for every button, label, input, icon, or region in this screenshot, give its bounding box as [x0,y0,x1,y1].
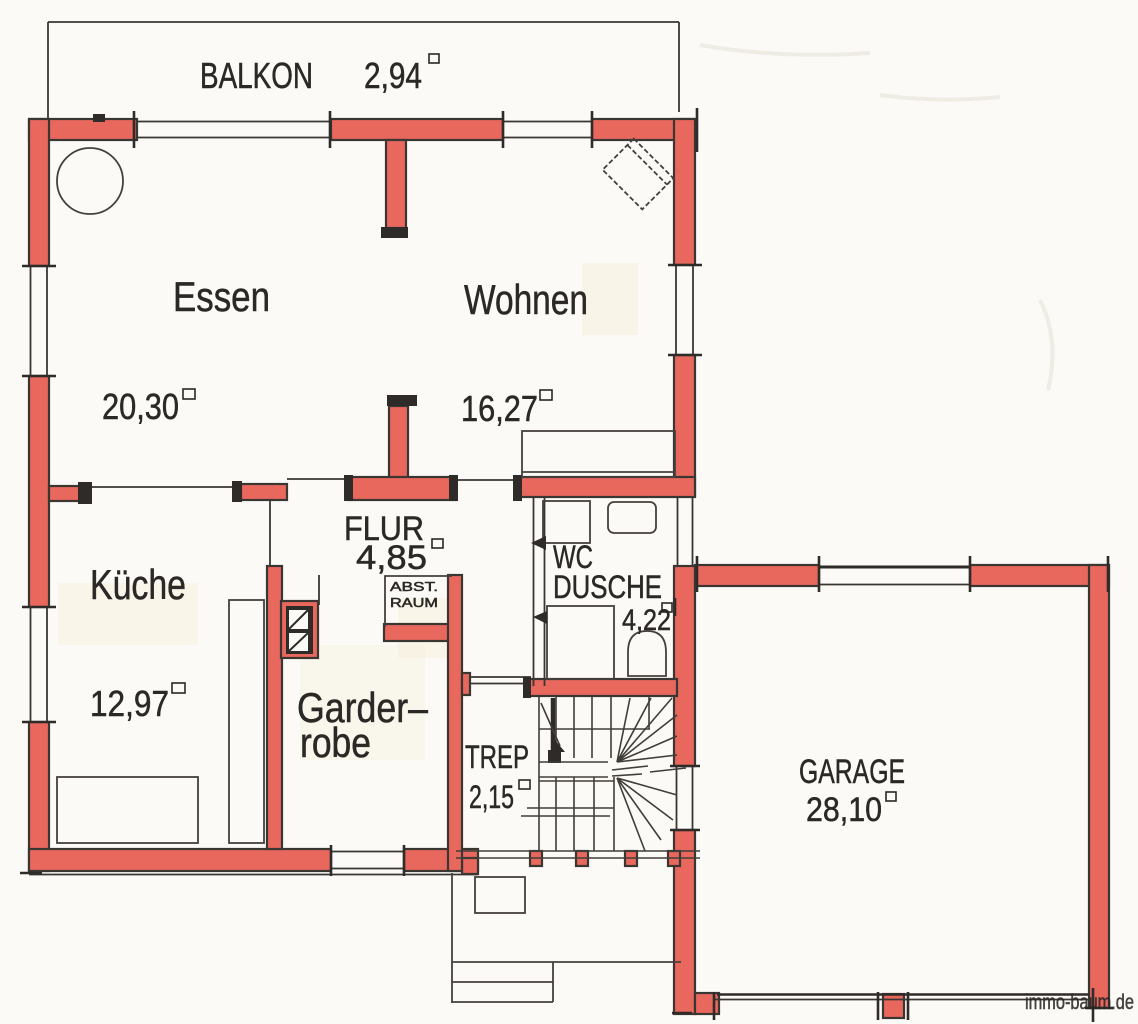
svg-text:GARAGE: GARAGE [799,753,905,791]
svg-text:DUSCHE: DUSCHE [553,569,662,605]
svg-text:ABST.: ABST. [390,579,438,594]
svg-text:16,27: 16,27 [461,388,538,429]
svg-text:robe: robe [300,719,371,766]
svg-text:Essen: Essen [173,273,270,320]
svg-text:4,85: 4,85 [356,539,427,577]
svg-text:immo-baum.de: immo-baum.de [1025,991,1134,1014]
svg-text:BALKON: BALKON [200,55,313,96]
svg-text:12,97: 12,97 [90,683,169,724]
svg-text:TREP: TREP [465,739,529,775]
svg-text:Küche: Küche [90,561,186,608]
svg-text:4,22: 4,22 [622,604,671,637]
svg-text:RAUM: RAUM [390,595,438,610]
svg-text:2,94: 2,94 [364,55,422,96]
svg-text:28,10: 28,10 [806,791,882,829]
svg-text:2,15: 2,15 [469,779,514,815]
svg-text:Wohnen: Wohnen [464,276,588,323]
svg-text:20,30: 20,30 [102,386,179,427]
